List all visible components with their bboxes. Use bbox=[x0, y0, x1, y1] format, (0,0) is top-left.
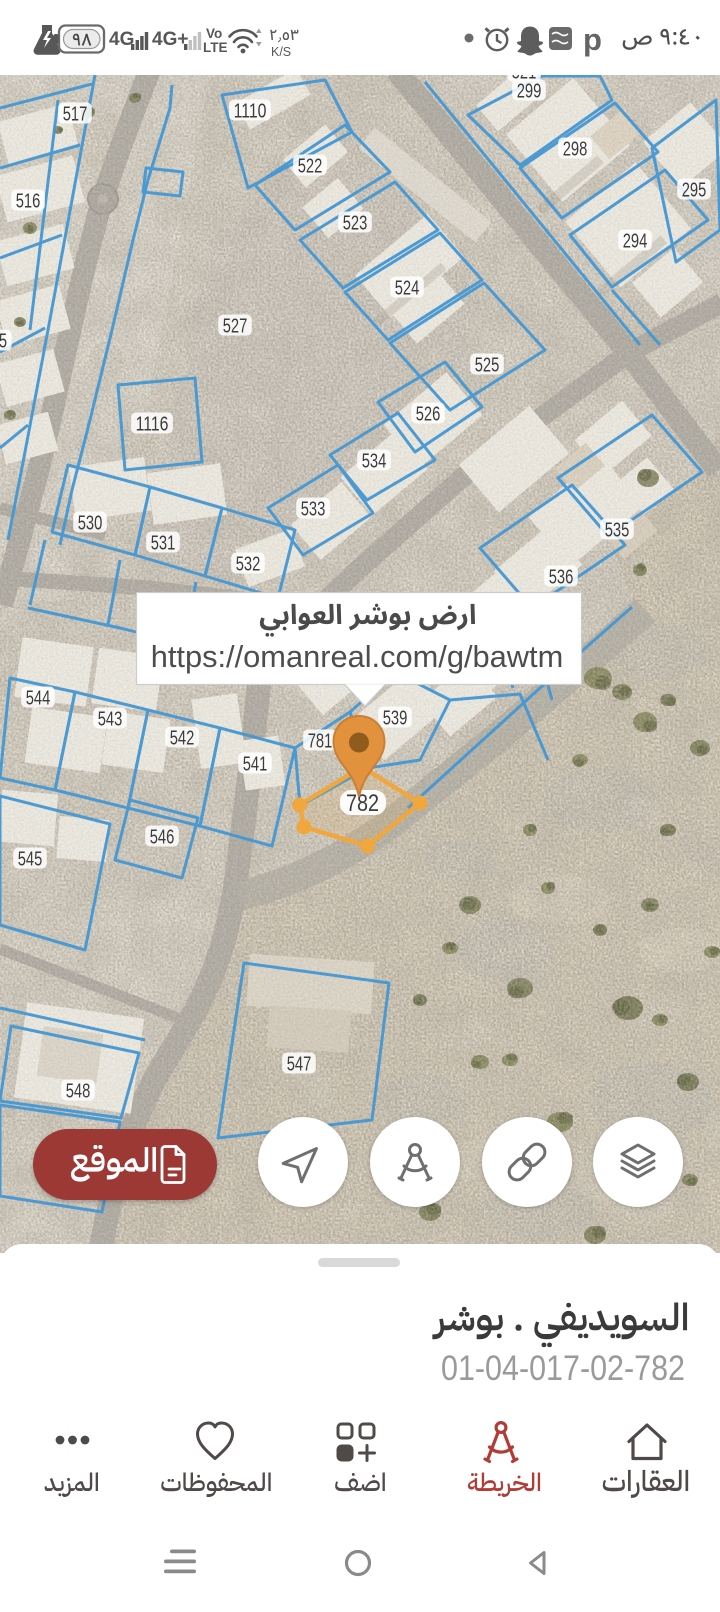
svg-text:5: 5 bbox=[0, 331, 7, 353]
svg-text:543: 543 bbox=[98, 709, 123, 731]
svg-text:536: 536 bbox=[549, 567, 574, 589]
svg-text:546: 546 bbox=[150, 827, 175, 849]
svg-text:545: 545 bbox=[18, 849, 43, 871]
svg-text:525: 525 bbox=[475, 355, 500, 377]
svg-text:295: 295 bbox=[682, 180, 707, 202]
svg-text:K/S: K/S bbox=[271, 45, 291, 59]
svg-text:544: 544 bbox=[26, 688, 51, 710]
svg-text:524: 524 bbox=[395, 278, 420, 300]
svg-text:547: 547 bbox=[287, 1054, 312, 1076]
svg-text:523: 523 bbox=[343, 213, 368, 235]
svg-text:1116: 1116 bbox=[136, 414, 169, 436]
svg-text:541: 541 bbox=[243, 754, 268, 776]
svg-text:298: 298 bbox=[563, 139, 588, 161]
svg-text:539: 539 bbox=[383, 708, 408, 730]
svg-text:521: 521 bbox=[512, 75, 537, 84]
svg-text:534: 534 bbox=[362, 451, 387, 473]
svg-text:01-04-017-02-782: 01-04-017-02-782 bbox=[441, 1348, 685, 1388]
svg-text:527: 527 bbox=[223, 316, 248, 338]
svg-text:p: p bbox=[583, 22, 602, 57]
svg-text:299: 299 bbox=[517, 81, 542, 103]
svg-text:535: 535 bbox=[605, 520, 630, 542]
svg-text:548: 548 bbox=[66, 1081, 91, 1103]
svg-text:517: 517 bbox=[63, 104, 88, 126]
svg-text:4G+: 4G+ bbox=[152, 29, 188, 50]
svg-text:530: 530 bbox=[78, 513, 103, 535]
svg-text:542: 542 bbox=[170, 728, 195, 750]
svg-text:526: 526 bbox=[416, 404, 441, 426]
svg-text:531: 531 bbox=[151, 533, 176, 555]
svg-text:522: 522 bbox=[298, 156, 323, 178]
svg-text:532: 532 bbox=[236, 554, 261, 576]
svg-text:1110: 1110 bbox=[234, 101, 267, 123]
svg-text:https://omanreal.com/g/bawtm: https://omanreal.com/g/bawtm bbox=[151, 639, 564, 674]
svg-text:782: 782 bbox=[346, 790, 379, 817]
svg-text:294: 294 bbox=[623, 231, 648, 253]
svg-text:533: 533 bbox=[301, 499, 326, 521]
svg-text:4G: 4G bbox=[109, 29, 134, 50]
svg-text:Vo: Vo bbox=[206, 26, 222, 41]
svg-text:LTE: LTE bbox=[203, 40, 228, 55]
svg-text:516: 516 bbox=[16, 191, 41, 213]
svg-text:781: 781 bbox=[308, 731, 333, 753]
